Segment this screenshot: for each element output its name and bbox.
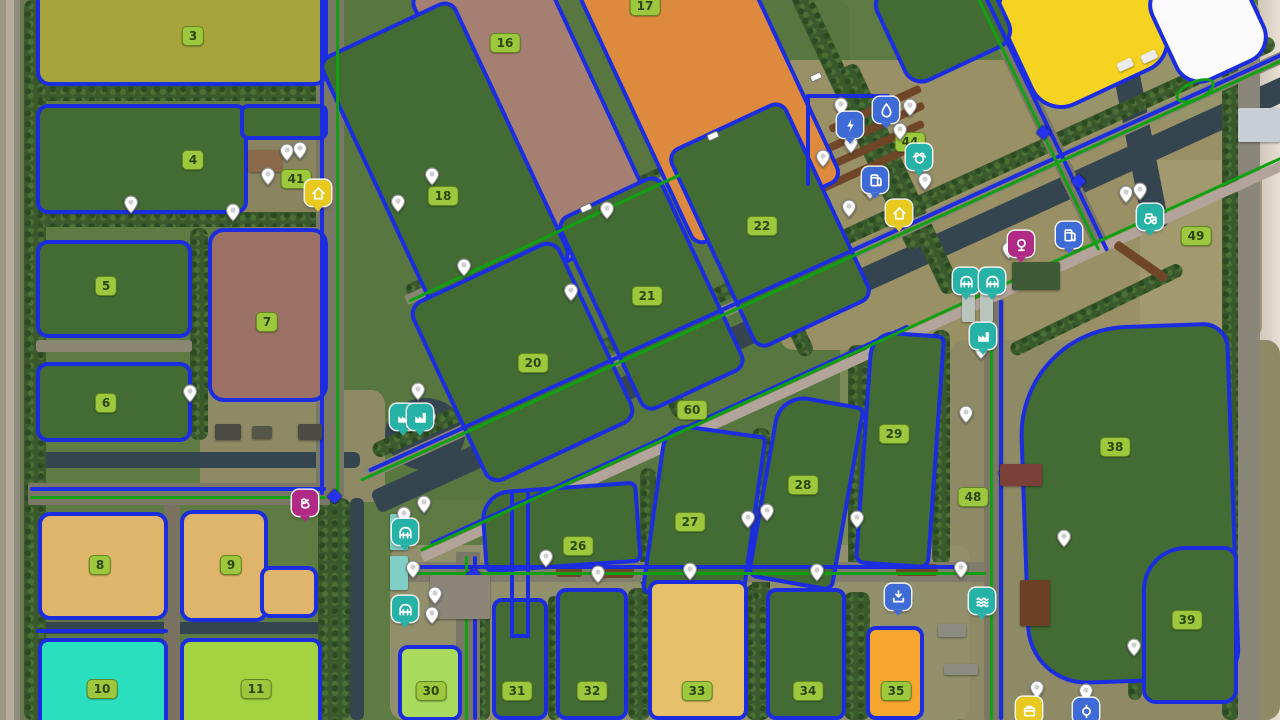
- field-label-4: 4: [182, 150, 204, 170]
- waypoint-pin-icon: [425, 167, 440, 186]
- tree-row: [628, 588, 650, 720]
- waypoint-pin[interactable]: [893, 122, 908, 145]
- waypoint-pin-icon: [428, 586, 443, 605]
- field-label-16: 16: [490, 33, 521, 53]
- field-label-7: 7: [256, 312, 278, 332]
- field-label-6: 6: [95, 393, 117, 413]
- field-label-48: 48: [958, 487, 989, 507]
- house-icon: [310, 184, 327, 201]
- route-blue-segment: [999, 300, 1003, 720]
- greenhouse-icon: [397, 523, 414, 540]
- fuel-icon: [867, 171, 884, 188]
- waypoint-pin[interactable]: [391, 194, 406, 217]
- waypoint-pin-icon: [261, 167, 276, 186]
- field-label-5: 5: [95, 276, 117, 296]
- waypoint-pin-icon: [683, 562, 698, 581]
- tree-row: [190, 228, 208, 440]
- poi-greenhouse[interactable]: [392, 519, 418, 545]
- waypoint-pin[interactable]: [1133, 182, 1148, 205]
- field-label-20: 20: [518, 353, 549, 373]
- waypoint-pin-icon: [457, 258, 472, 277]
- route-green-segment: [336, 0, 339, 493]
- field-shape-35[interactable]: [866, 626, 924, 720]
- farm-overview-map[interactable]: 3456789101116171820212226272829303132333…: [0, 0, 1280, 720]
- waypoint-pin[interactable]: [293, 141, 308, 164]
- waypoint-pin-icon: [600, 201, 615, 220]
- waypoint-pin[interactable]: [683, 562, 698, 585]
- waypoint-pin-icon: [954, 560, 969, 579]
- waypoint-pin-icon: [842, 199, 857, 218]
- field-label-8: 8: [89, 555, 111, 575]
- poi-depot[interactable]: [1016, 697, 1042, 720]
- building: [938, 624, 966, 637]
- tree-row: [318, 498, 350, 720]
- field-label-29: 29: [879, 424, 910, 444]
- waypoint-pin[interactable]: [564, 283, 579, 306]
- building: [1020, 580, 1050, 626]
- waypoint-pin[interactable]: [954, 560, 969, 583]
- route-blue-segment: [36, 629, 168, 633]
- pond: [350, 498, 364, 720]
- field-label-21: 21: [632, 286, 663, 306]
- waypoint-pin[interactable]: [850, 510, 865, 533]
- dirt-path: [36, 340, 192, 352]
- tractor-icon: [1142, 208, 1159, 225]
- waypoint-pin[interactable]: [842, 199, 857, 222]
- poi-greenhouse[interactable]: [392, 596, 418, 622]
- waypoint-pin-icon: [893, 122, 908, 141]
- field-shape-4[interactable]: [240, 104, 328, 140]
- road: [1238, 55, 1260, 720]
- waypoint-pin-icon: [425, 606, 440, 625]
- field-shape-31[interactable]: [492, 598, 548, 720]
- greenhouse-icon: [958, 272, 975, 289]
- route-blue-segment: [30, 487, 326, 491]
- field-label-39: 39: [1172, 610, 1203, 630]
- route-blue-segment: [320, 0, 324, 495]
- waypoint-pin-icon: [810, 563, 825, 582]
- waypoint-pin[interactable]: [591, 565, 606, 588]
- field-shape-4[interactable]: [36, 104, 248, 214]
- building: [1000, 464, 1042, 486]
- field-label-22: 22: [747, 216, 778, 236]
- waypoint-pin-icon: [741, 510, 756, 529]
- building: [215, 424, 241, 440]
- waypoint-pin[interactable]: [816, 149, 831, 172]
- water-icon: [878, 101, 895, 118]
- poi-fuel[interactable]: [862, 167, 888, 193]
- depot-icon: [1021, 701, 1038, 718]
- building: [298, 424, 322, 440]
- waypoint-pin[interactable]: [411, 382, 426, 405]
- building: [944, 664, 978, 675]
- field-label-11: 11: [241, 679, 272, 699]
- field-label-26: 26: [563, 536, 594, 556]
- poi-unload[interactable]: [885, 584, 911, 610]
- field-label-17: 17: [630, 0, 661, 16]
- waypoint-pin-icon: [391, 194, 406, 213]
- building: [1012, 262, 1060, 290]
- house-icon: [891, 204, 908, 221]
- field-shape-26[interactable]: [479, 481, 642, 574]
- poi-fuel[interactable]: [1056, 222, 1082, 248]
- field-label-30: 30: [416, 681, 447, 701]
- waypoint-pin[interactable]: [406, 560, 421, 583]
- poi-waves[interactable]: [969, 588, 995, 614]
- waypoint-pin[interactable]: [124, 195, 139, 218]
- waypoint-pin[interactable]: [760, 503, 775, 526]
- field-label-10: 10: [87, 679, 118, 699]
- building: [1238, 108, 1280, 142]
- waypoint-pin-icon: [1057, 529, 1072, 548]
- waypoint-pin-icon: [411, 382, 426, 401]
- waypoint-pin-icon: [959, 405, 974, 424]
- waypoint-pin-icon: [293, 141, 308, 160]
- field-label-38: 38: [1100, 437, 1131, 457]
- waypoint-pin[interactable]: [741, 510, 756, 533]
- poi-house[interactable]: [305, 180, 331, 206]
- waypoint-pin[interactable]: [600, 201, 615, 224]
- poi-tractor[interactable]: [1137, 204, 1163, 230]
- production-icon: [412, 408, 429, 425]
- tree-row: [36, 86, 328, 101]
- waypoint-pin[interactable]: [1119, 185, 1134, 208]
- power-icon: [842, 116, 859, 133]
- waypoint-pin[interactable]: [457, 258, 472, 281]
- poi-greenhouse[interactable]: [979, 268, 1005, 294]
- waypoint-pin-icon: [417, 495, 432, 514]
- shop-icon: [1013, 235, 1030, 252]
- field-label-28: 28: [788, 475, 819, 495]
- waypoint-pin[interactable]: [226, 203, 241, 226]
- waypoint-pin-icon: [1119, 185, 1134, 204]
- waypoint-pin-icon: [903, 98, 918, 117]
- canal: [30, 452, 360, 468]
- poi-animal[interactable]: [292, 490, 318, 516]
- waves-icon: [974, 592, 991, 609]
- poi-power[interactable]: [837, 112, 863, 138]
- fuel-icon: [1061, 226, 1078, 243]
- route-blue-segment: [400, 565, 962, 569]
- route-green-segment: [30, 496, 326, 499]
- field-label-33: 33: [682, 681, 713, 701]
- waypoint-pin[interactable]: [425, 167, 440, 190]
- poi-greenhouse[interactable]: [953, 268, 979, 294]
- greenhouse-icon: [397, 600, 414, 617]
- production-icon: [975, 327, 992, 344]
- waypoint-pin-icon: [1127, 638, 1142, 657]
- greenhouse-icon: [984, 272, 1001, 289]
- waypoint-pin[interactable]: [903, 98, 918, 121]
- field-label-31: 31: [502, 681, 533, 701]
- waypoint-pin[interactable]: [261, 167, 276, 190]
- building: [252, 426, 272, 439]
- cow-icon: [911, 148, 928, 165]
- waypoint-pin[interactable]: [1057, 529, 1072, 552]
- waypoint-pin-icon: [226, 203, 241, 222]
- waypoint-pin[interactable]: [539, 549, 554, 572]
- unload-icon: [890, 588, 907, 605]
- field-label-34: 34: [793, 681, 824, 701]
- field-label-35: 35: [881, 681, 912, 701]
- waypoint-pin[interactable]: [1127, 638, 1142, 661]
- poi-production[interactable]: [407, 404, 433, 430]
- poi-station[interactable]: [1073, 698, 1099, 720]
- waypoint-pin[interactable]: [425, 606, 440, 629]
- waypoint-pin-icon: [564, 283, 579, 302]
- route-blue-segment: [510, 634, 530, 638]
- waypoint-pin-icon: [760, 503, 775, 522]
- waypoint-pin[interactable]: [417, 495, 432, 518]
- waypoint-pin-icon: [850, 510, 865, 529]
- poi-cow[interactable]: [906, 144, 932, 170]
- waypoint-pin-icon: [1133, 182, 1148, 201]
- map-edge-left: [0, 0, 26, 720]
- animal-icon: [297, 494, 314, 511]
- waypoint-pin[interactable]: [959, 405, 974, 428]
- tree-row: [36, 212, 328, 227]
- field-label-27: 27: [675, 512, 706, 532]
- waypoint-pin-icon: [124, 195, 139, 214]
- waypoint-pin[interactable]: [183, 384, 198, 407]
- station-icon: [1078, 702, 1095, 719]
- poi-production[interactable]: [970, 323, 996, 349]
- field-label-60: 60: [677, 400, 708, 420]
- poi-house[interactable]: [886, 200, 912, 226]
- waypoint-pin[interactable]: [810, 563, 825, 586]
- field-shape-9[interactable]: [260, 566, 318, 618]
- poi-shop[interactable]: [1008, 231, 1034, 257]
- field-label-49: 49: [1181, 226, 1212, 246]
- waypoint-pin-icon: [591, 565, 606, 584]
- waypoint-pin-icon: [183, 384, 198, 403]
- route-blue-segment: [806, 94, 810, 186]
- field-label-9: 9: [220, 555, 242, 575]
- field-label-3: 3: [182, 26, 204, 46]
- field-label-32: 32: [577, 681, 608, 701]
- waypoint-pin-icon: [539, 549, 554, 568]
- waypoint-pin-icon: [406, 560, 421, 579]
- waypoint-pin-icon: [816, 149, 831, 168]
- poi-water[interactable]: [873, 97, 899, 123]
